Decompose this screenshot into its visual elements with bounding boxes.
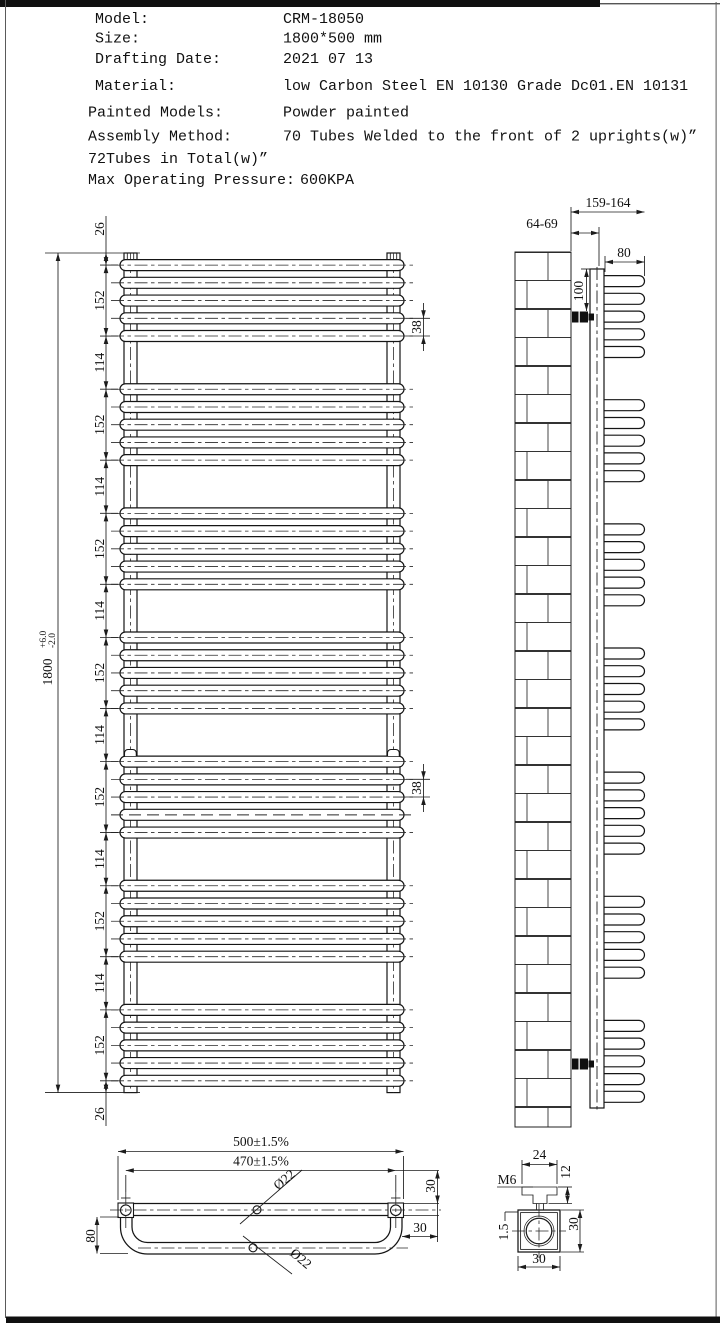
dimension-arrow: [518, 1265, 526, 1270]
dimension-arrow: [126, 1168, 134, 1173]
dimension-arrow: [421, 771, 426, 779]
dim-chain-label: 114: [92, 477, 107, 497]
dimension-arrow: [565, 1187, 570, 1195]
side-tube-end: [604, 435, 645, 446]
spec-label: Size:: [95, 31, 140, 48]
dimension-arrow: [578, 1244, 583, 1252]
side-tube-end: [604, 808, 645, 819]
dim-chain-label: 26: [92, 1107, 107, 1121]
side-tube-end: [604, 418, 645, 429]
side-view: [515, 252, 645, 1127]
dimension-arrow: [421, 336, 426, 344]
dim-tube-pitch-mid: 38: [409, 781, 424, 795]
side-tube-ends: [604, 276, 645, 1103]
spec-value: low Carbon Steel EN 10130 Grade Dc01.EN …: [283, 78, 688, 95]
dim-wall-to-upright: 64-69: [526, 216, 558, 231]
side-tube-end: [604, 329, 645, 340]
spec-label: Painted Models:: [88, 105, 223, 122]
bracket-clamp: [589, 1061, 595, 1068]
spec-value: 70 Tubes Welded to the front of 2 uprigh…: [283, 129, 697, 146]
dimension-arrow: [552, 1265, 560, 1270]
side-tube-end: [604, 1038, 645, 1049]
dimension-arrow: [396, 1149, 404, 1154]
dimension-arrow: [578, 1210, 583, 1218]
side-tube-end: [604, 1056, 645, 1067]
side-tube-end: [604, 276, 645, 287]
dimension-arrow: [421, 797, 426, 805]
spec-value: 2021 07 13: [283, 51, 373, 68]
spec-label: Max Operating Pressure:: [88, 172, 295, 189]
spec-value: 600KPA: [300, 172, 354, 189]
dim-chain-label: 152: [92, 1035, 107, 1055]
side-tube-end: [604, 347, 645, 358]
wall-section: [515, 252, 571, 1127]
side-tube-end: [604, 914, 645, 925]
bracket-block: [572, 1059, 579, 1070]
side-tube-end: [604, 666, 645, 677]
dimension-arrow: [637, 260, 645, 265]
dim-tube-depth: 80: [617, 245, 631, 260]
spec-value: 1800*500 mm: [283, 31, 382, 48]
dim-chain-label: 152: [92, 415, 107, 435]
rear-tube-stub: [388, 750, 400, 757]
dimension-arrow: [584, 269, 589, 277]
dim-chain-label: 152: [92, 787, 107, 807]
dim-tolerance-minus: -2.0: [48, 633, 58, 648]
spec-label: Drafting Date:: [95, 51, 221, 68]
dimension-arrow: [522, 1162, 530, 1167]
dim-upright-centers: 470±1.5%: [233, 1154, 289, 1169]
dim-bracket-drop: 100: [571, 281, 586, 302]
side-tube-end: [604, 400, 645, 411]
bottom-rail-extension: [404, 1204, 440, 1216]
bottom-view: [118, 1203, 439, 1254]
rear-tube-stub: [125, 750, 137, 757]
side-tube-end: [604, 684, 645, 695]
bracket-block: [580, 1059, 588, 1070]
side-tube-end: [604, 843, 645, 854]
frame-top-thin: [600, 3, 720, 4]
dim-thread-size: M6: [498, 1172, 517, 1187]
frame-left-line: [5, 0, 6, 1318]
side-tube-end: [604, 524, 645, 535]
dim-chain-label: 114: [92, 601, 107, 621]
front-tube-stubs: [125, 750, 400, 757]
radiator-technical-drawing: Model: CRM-18050 Size: 1800*500 mm Draft…: [0, 0, 720, 1323]
spec-value: Powder painted: [283, 105, 409, 122]
dim-chain-label: 114: [92, 353, 107, 373]
side-tube-end: [604, 896, 645, 907]
dim-offset-right-v: 30: [423, 1179, 438, 1193]
dimension-arrow: [430, 1234, 438, 1239]
side-tube-end: [604, 648, 645, 659]
frame-right-line: [716, 2, 717, 1317]
dim-loop-depth: 80: [83, 1229, 98, 1243]
side-tube-end: [604, 471, 645, 482]
side-tube-end: [604, 825, 645, 836]
spec-block: Model: CRM-18050 Size: 1800*500 mm Draft…: [88, 11, 697, 189]
dim-overall-width: 500±1.5%: [233, 1134, 289, 1149]
dimension-arrow: [435, 1196, 440, 1204]
dimension-arrow: [56, 1085, 61, 1093]
side-tube-end: [604, 542, 645, 553]
dimension-arrow: [565, 1196, 570, 1204]
side-tube-end: [604, 1074, 645, 1085]
dimension-arrow: [605, 260, 613, 265]
side-tube-end: [604, 1020, 645, 1031]
dim-tube-diameter-bottom: Ø22: [287, 1245, 314, 1271]
dim-label: 1800: [40, 658, 55, 685]
spec-label: Model:: [95, 11, 149, 28]
bracket-clamp: [589, 314, 595, 321]
side-tube-end: [604, 293, 645, 304]
side-tube-end: [604, 559, 645, 570]
dimension-arrow: [571, 231, 579, 236]
side-tube-end: [604, 949, 645, 960]
side-tube-end: [604, 595, 645, 606]
dim-chain-label: 152: [92, 663, 107, 683]
detail-view: [518, 1187, 560, 1252]
dimension-arrow: [95, 1246, 100, 1254]
dim-body-height: 30: [566, 1217, 581, 1231]
dimension-arrow: [435, 1171, 440, 1179]
dim-tube-pitch-top: 38: [409, 320, 424, 334]
side-tube-end: [604, 932, 645, 943]
dimension-arrow: [549, 1162, 557, 1167]
dim-chain-label: 152: [92, 539, 107, 559]
dim-chain-label: 26: [92, 222, 107, 236]
frame-top-band: [0, 0, 600, 7]
dim-wall-thickness: 1.5: [496, 1223, 511, 1240]
dimension-arrow: [56, 253, 61, 261]
spec-value: CRM-18050: [283, 11, 364, 28]
spec-label: Assembly Method:: [88, 129, 232, 146]
side-tube-end: [604, 719, 645, 730]
dim-body-width: 30: [532, 1251, 546, 1266]
drawing-canvas: Model: CRM-18050 Size: 1800*500 mm Draft…: [0, 0, 720, 1323]
bracket-block: [572, 312, 579, 323]
tube-loop-outer: [121, 1217, 403, 1254]
side-tube-end: [604, 311, 645, 322]
front-dimension-chain: 2615211415211415211415211415211415211415…: [92, 222, 118, 1121]
dim-chain-label: 152: [92, 290, 107, 310]
dimension-arrow: [637, 210, 645, 215]
side-tube-end: [604, 772, 645, 783]
frame-bottom-band: [6, 1317, 720, 1323]
dimension-arrow: [571, 210, 579, 215]
dim-overall-height: 1800 +6.0 -2.0: [39, 631, 58, 686]
dimension-arrow: [118, 1149, 126, 1154]
dimension-arrow: [584, 303, 589, 311]
dim-chain-label: 114: [92, 725, 107, 745]
dimension-arrow: [402, 1234, 410, 1239]
side-tube-end: [604, 701, 645, 712]
tube-loop-inner: [132, 1217, 391, 1243]
dim-offset-right-h: 30: [413, 1220, 427, 1235]
side-tube-end: [604, 453, 645, 464]
dim-chain-label: 152: [92, 911, 107, 931]
side-tube-end: [604, 790, 645, 801]
dim-plate-width: 24: [533, 1147, 547, 1162]
spec-label: Material:: [95, 78, 176, 95]
dimension-arrow: [95, 1217, 100, 1225]
dim-chain-label: 114: [92, 849, 107, 869]
spec-label: 72Tubes in Total(w)”: [88, 151, 268, 168]
dim-wall-to-front: 159-164: [586, 195, 631, 210]
front-tubes: [111, 260, 413, 1087]
dim-chain-label: 114: [92, 973, 107, 993]
dim-plate-height: 12: [558, 1165, 573, 1179]
bracket-plate: [522, 1187, 557, 1204]
dimension-arrow: [421, 310, 426, 318]
dimension-arrow: [591, 231, 599, 236]
dimension-line: [243, 1236, 292, 1274]
side-tube-end: [604, 967, 645, 978]
dimension-arrow: [388, 1168, 396, 1173]
bracket-block: [580, 312, 588, 323]
side-tube-end: [604, 1091, 645, 1102]
side-tube-end: [604, 577, 645, 588]
